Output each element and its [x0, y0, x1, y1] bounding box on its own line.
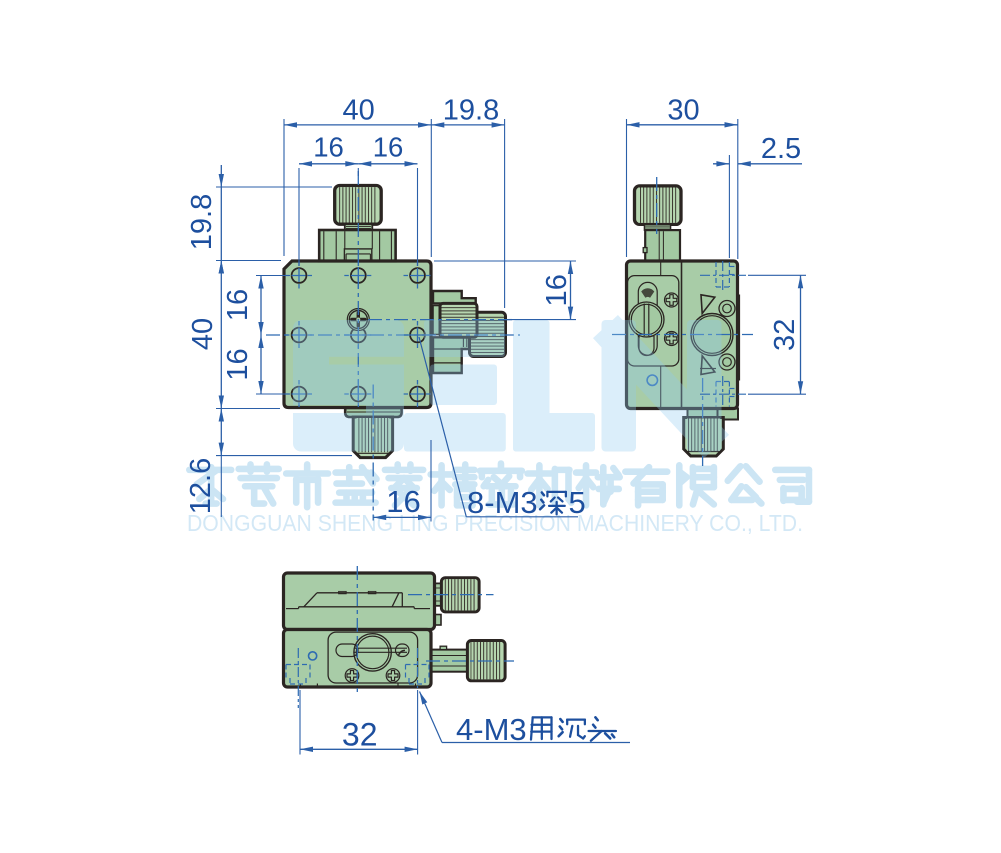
svg-text:5: 5 — [569, 485, 586, 520]
svg-text:19.8: 19.8 — [186, 194, 218, 250]
svg-text:30: 30 — [667, 95, 699, 127]
svg-text:32: 32 — [342, 717, 378, 753]
svg-text:8-M3: 8-M3 — [467, 485, 538, 520]
svg-text:2.5: 2.5 — [761, 133, 801, 165]
svg-text:16: 16 — [313, 132, 344, 163]
svg-text:40: 40 — [342, 95, 374, 127]
svg-text:4-M3: 4-M3 — [456, 712, 527, 747]
svg-text:16: 16 — [222, 289, 254, 321]
svg-text:16: 16 — [386, 484, 420, 519]
svg-text:40: 40 — [187, 318, 219, 350]
svg-text:12.6: 12.6 — [185, 458, 217, 514]
svg-text:32: 32 — [769, 319, 801, 351]
svg-text:16: 16 — [541, 274, 573, 306]
svg-text:16: 16 — [222, 348, 254, 380]
svg-text:19.8: 19.8 — [443, 95, 499, 127]
svg-text:16: 16 — [373, 132, 404, 163]
